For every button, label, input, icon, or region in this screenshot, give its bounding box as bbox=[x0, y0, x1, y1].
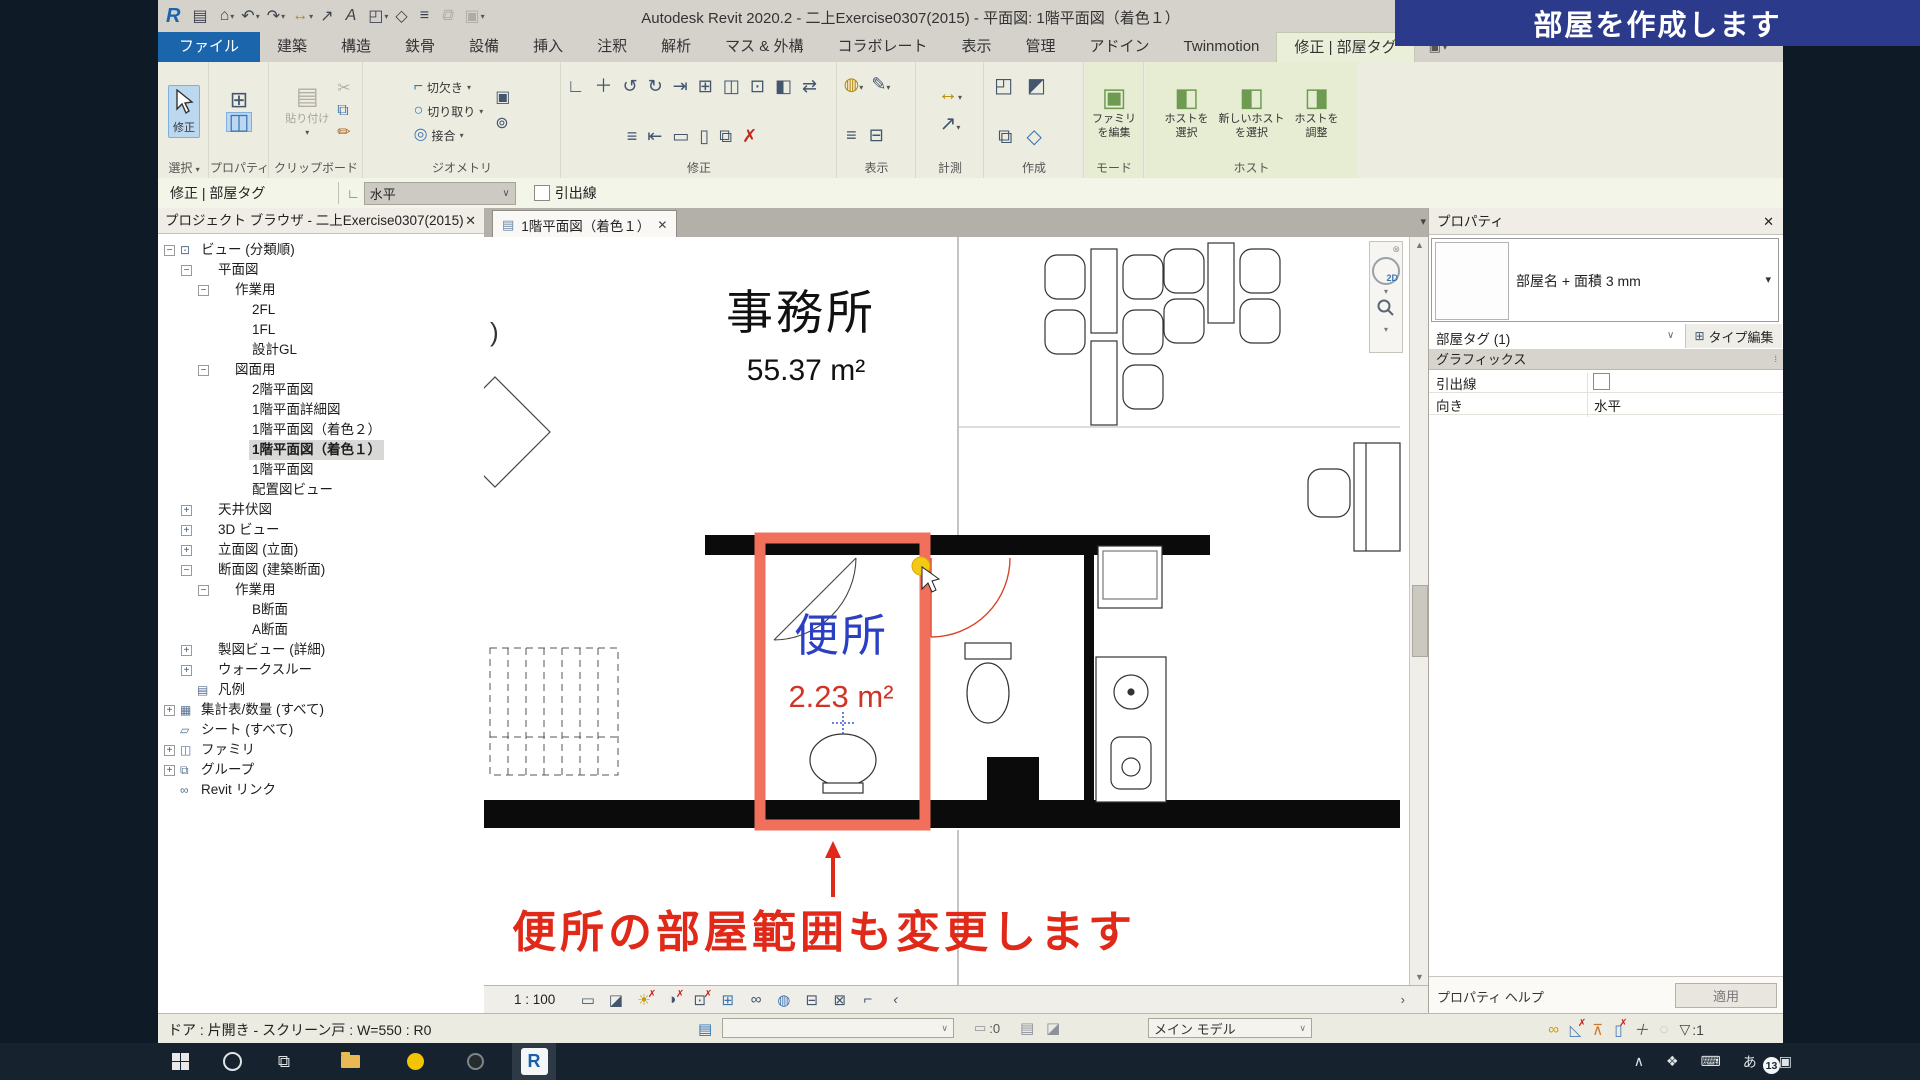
ribbon-tab[interactable]: Twinmotion bbox=[1167, 32, 1277, 62]
browser-icon bbox=[467, 1053, 484, 1070]
workset-dropdown[interactable]: ∨ bbox=[722, 1018, 954, 1038]
group-label-host[interactable]: ホスト bbox=[1145, 159, 1358, 177]
context-label: 修正 | 部屋タグ bbox=[170, 183, 330, 203]
view-tool-icon[interactable]: ◍▾ bbox=[844, 75, 864, 97]
tree-expand-icon[interactable]: + bbox=[164, 705, 175, 716]
selection-toggles: ∞✗ ◺✗ ⊼✗ ▯✗ ＋✗ bbox=[1548, 1019, 1704, 1040]
tree-item-icon: ◫ bbox=[180, 740, 194, 760]
screen: R▾ ▤▾ ⌂▾ ↶▾ ↷▾ ↔▾ ↗▾ A▾ ◰▾ ◇▾ bbox=[0, 0, 1920, 1080]
panel-host: ◧ ホストを 選択 ◧ 新しいホスト を選択 ◨ ホスト bbox=[1145, 62, 1358, 178]
tree-item-label: 1FL bbox=[249, 320, 278, 340]
property-row-orientation: 向き 水平 bbox=[1429, 392, 1783, 415]
tree-item-label: ファミリ bbox=[198, 740, 258, 760]
close-icon[interactable]: ✕ bbox=[1763, 208, 1774, 235]
view-control-bar: 1 : 100 ▭✗ ◪✗ ☀✗ bbox=[484, 985, 1429, 1013]
view-control-icon[interactable]: ⌐✗ bbox=[858, 991, 877, 1009]
edit-type-button[interactable]: ⊞ タイプ編集 bbox=[1685, 324, 1782, 348]
view-control-icon[interactable]: ⊠✗ bbox=[830, 991, 849, 1009]
tree-item-label: 2FL bbox=[249, 300, 278, 320]
geometry-tool[interactable]: ◎ 接合▾ bbox=[414, 126, 484, 144]
tree-item-label: B断面 bbox=[249, 600, 291, 620]
view-icon: ▤ bbox=[502, 217, 514, 233]
editable-count: ▭ :0 bbox=[974, 1020, 1000, 1036]
view-tab-menu-icon[interactable]: ▾ bbox=[1420, 215, 1426, 228]
room-area-office: 55.37 m² bbox=[747, 354, 865, 387]
selection-toggle-icon[interactable]: ◌✗ bbox=[1660, 1021, 1669, 1038]
modify-tool-icon[interactable]: ≡ bbox=[627, 127, 638, 145]
tree-expand-icon[interactable]: + bbox=[181, 505, 192, 516]
tray-icon[interactable]: ∧ bbox=[1634, 1053, 1644, 1070]
tree-item[interactable]: − 図面用 bbox=[158, 360, 484, 380]
modify-tool-icon[interactable]: ⇥ bbox=[673, 77, 688, 95]
tree-item-icon: ▤ bbox=[197, 680, 211, 700]
ribbon-tab[interactable]: 設備 bbox=[452, 32, 516, 62]
clipboard-tool-icon[interactable]: ✂ bbox=[337, 80, 350, 98]
group-label-clipboard[interactable]: クリップボード bbox=[270, 159, 362, 177]
close-icon[interactable]: ✕ bbox=[465, 208, 476, 234]
panel-view: ◍▾✎▾≡▾⊟▾ 表示 bbox=[838, 62, 916, 178]
modify-tool-icon[interactable]: ＋ bbox=[595, 77, 613, 95]
project-browser-tree: − ⊡ ビュー (分類順) − 平面図 − 作業用 bbox=[158, 235, 484, 1013]
tree-item[interactable]: ▤ 凡例 bbox=[158, 680, 484, 700]
tree-expand-icon[interactable]: − bbox=[198, 585, 209, 596]
view-control-icon[interactable]: ◪✗ bbox=[606, 991, 625, 1009]
tree-item-label: 2階平面図 bbox=[249, 380, 317, 400]
options-bar: 修正 | 部屋タグ ∟ 水平 ∨ 引出線 bbox=[158, 178, 1783, 209]
status-bar: ドア : 片開き - スクリーン戸 : W=550 : R0 ▤ ∨ ▭ :0 … bbox=[158, 1013, 1783, 1043]
status-message: ドア : 片開き - スクリーン戸 : W=550 : R0 bbox=[168, 1020, 431, 1040]
tree-item[interactable]: A断面 bbox=[158, 620, 484, 640]
create-tool-icon[interactable]: ◇ bbox=[1026, 128, 1041, 146]
group-label-geometry[interactable]: ジオメトリ bbox=[364, 159, 560, 177]
type-preview bbox=[1435, 242, 1509, 320]
panel-modify: ∟＋↺↻⇥⊞◫⊡◧⇄≡⇤▭▯⧉✗ 修正 bbox=[562, 62, 837, 178]
selection-toggle-icon[interactable]: ◺✗ bbox=[1570, 1021, 1582, 1039]
tree-expand-icon[interactable]: + bbox=[181, 525, 192, 536]
drawing-area: ▤ 1階平面図（着色１） ✕ ▾ ) bbox=[484, 208, 1429, 1013]
measure-tool-icon[interactable]: ↔▾ bbox=[938, 85, 962, 107]
tree-item[interactable]: 1FL bbox=[158, 320, 484, 340]
annotation-text: 便所の部屋範囲も変更します bbox=[512, 907, 1136, 957]
tree-item-label: 1階平面図（着色１） bbox=[249, 440, 384, 460]
tray-icon[interactable]: ❖ bbox=[1666, 1053, 1679, 1070]
measure-tool-icon[interactable]: ↗▾ bbox=[940, 115, 961, 137]
tree-item[interactable]: + 立面図 (立面) bbox=[158, 540, 484, 560]
group-label-properties[interactable]: プロパティ bbox=[210, 159, 268, 177]
group-label-modify[interactable]: 修正 bbox=[562, 159, 836, 177]
host-icon: ◧ bbox=[1174, 83, 1199, 111]
tree-item[interactable]: + ◫ ファミリ bbox=[158, 740, 484, 760]
modify-tool-icon[interactable]: ⊞ bbox=[698, 77, 713, 95]
properties-header[interactable]: プロパティ ✕ bbox=[1429, 208, 1783, 235]
modify-button[interactable]: 修正 bbox=[168, 85, 200, 138]
geometry-tool[interactable]: ⌐ 切欠き▾ bbox=[414, 78, 484, 96]
door-swing-red bbox=[931, 558, 1010, 637]
tree-item[interactable]: 1階平面図（着色１） bbox=[158, 440, 484, 460]
modify-tool-icon[interactable]: ↺ bbox=[623, 77, 638, 95]
scroll-down-icon[interactable]: ▼ bbox=[1410, 972, 1429, 982]
wall-bottom bbox=[484, 800, 1400, 828]
properties-palette-icon[interactable]: ◫ bbox=[226, 112, 253, 132]
revit-window: R▾ ▤▾ ⌂▾ ↶▾ ↷▾ ↔▾ ↗▾ A▾ ◰▾ ◇▾ bbox=[158, 0, 1783, 1043]
orientation-icon: ∟ bbox=[347, 186, 360, 201]
tree-expand-icon[interactable]: − bbox=[198, 285, 209, 296]
panel-measure: ↔▾↗▾ 計測 bbox=[917, 62, 984, 178]
view-tab[interactable]: ▤ 1階平面図（着色１） ✕ bbox=[492, 210, 677, 238]
edit-family-button[interactable]: ▣ ファミリ を編集 bbox=[1088, 80, 1140, 142]
ribbon-tab[interactable]: アドイン bbox=[1073, 32, 1167, 62]
room-name-toilet: 便所 bbox=[794, 610, 888, 661]
tree-item-label: A断面 bbox=[249, 620, 291, 640]
tree-item[interactable]: 配置図ビュー bbox=[158, 480, 484, 500]
tree-item-label: 立面図 (立面) bbox=[215, 540, 301, 560]
wall-divider bbox=[1084, 555, 1094, 802]
paste-button[interactable]: ▤ 貼り付け▾ bbox=[281, 80, 333, 142]
tree-expand-icon[interactable]: − bbox=[198, 365, 209, 376]
tree-item[interactable]: − 平面図 bbox=[158, 260, 484, 280]
view-control-icon[interactable]: ⊞✗ bbox=[718, 991, 737, 1009]
apply-button[interactable]: 適用 bbox=[1675, 983, 1777, 1008]
group-label-view[interactable]: 表示 bbox=[838, 159, 915, 177]
close-view-icon[interactable]: ✕ bbox=[657, 218, 667, 232]
yellow-app-icon bbox=[407, 1053, 424, 1070]
modify-tool-icon[interactable]: ◧ bbox=[775, 77, 792, 95]
browser-button[interactable] bbox=[455, 1043, 495, 1080]
paste-icon: ▤ bbox=[296, 83, 319, 111]
panel-create: ◰◩⧉◇ 作成 bbox=[985, 62, 1084, 178]
tree-item-label: 配置図ビュー bbox=[249, 480, 336, 500]
clipboard-tool-icon[interactable]: ✏ bbox=[337, 124, 350, 142]
search-icon bbox=[223, 1052, 242, 1071]
family-properties-icon[interactable]: ⊞ bbox=[230, 91, 248, 109]
clipboard-tool-icon[interactable]: ⧉ bbox=[337, 102, 350, 120]
group-label-measure[interactable]: 計測 bbox=[917, 159, 983, 177]
element-filter-row: 部屋タグ (1) ∨ ⊞ タイプ編集 bbox=[1429, 324, 1783, 350]
orientation-value[interactable]: 水平 bbox=[1587, 395, 1767, 417]
ribbon-tab[interactable]: 解析 bbox=[644, 32, 708, 62]
host-icon: ◧ bbox=[1239, 83, 1264, 111]
cursor-icon bbox=[173, 89, 195, 120]
tree-item[interactable]: ∞ Revit リンク bbox=[158, 780, 484, 800]
panel-mode: ▣ ファミリ を編集 モード bbox=[1085, 62, 1144, 178]
modify-tool-icon[interactable]: ▯ bbox=[699, 127, 709, 145]
view-tool-icon[interactable]: ⊟▾ bbox=[869, 126, 888, 148]
geometry-side-icon[interactable]: ▣ bbox=[495, 89, 510, 107]
tree-item[interactable]: 1階平面図 bbox=[158, 460, 484, 480]
modify-tool-icon[interactable]: ✗ bbox=[742, 127, 757, 145]
host-button[interactable]: ◨ ホストを 調整 bbox=[1291, 80, 1343, 142]
navigation-bar: ⊗ 2D ▾ ▾ bbox=[1369, 241, 1403, 353]
floor-plan-svg: ) bbox=[484, 237, 1409, 985]
geometry-tool-icon: ⌐ bbox=[414, 78, 423, 96]
ribbon-tab[interactable]: 注釈 bbox=[580, 32, 644, 62]
host-button[interactable]: ◧ ホストを 選択 bbox=[1161, 80, 1213, 142]
task-view-button[interactable]: ⧉ bbox=[264, 1043, 304, 1080]
ribbon-tab[interactable]: マス & 外構 bbox=[708, 32, 820, 62]
properties-help-link[interactable]: プロパティ ヘルプ bbox=[1437, 987, 1544, 1006]
section-pin-icon: ⁞ bbox=[1774, 349, 1777, 370]
revit-icon: R bbox=[521, 1048, 548, 1075]
start-button[interactable] bbox=[160, 1043, 200, 1080]
geometry-tool[interactable]: ○ 切り取り▾ bbox=[414, 102, 484, 120]
view-control-icon[interactable]: ◑✗ bbox=[662, 991, 681, 1009]
tree-item-label: 天井伏図 bbox=[215, 500, 275, 520]
tree-item-label: 平面図 bbox=[215, 260, 262, 280]
folder-icon bbox=[341, 1055, 360, 1068]
tree-item-icon: ▱ bbox=[180, 720, 194, 740]
tree-item[interactable]: + 製図ビュー (詳細) bbox=[158, 640, 484, 660]
ribbon-tab[interactable]: 管理 bbox=[1009, 32, 1073, 62]
edit-type-icon: ⊞ bbox=[1694, 329, 1704, 343]
modify-tool-icon[interactable]: ▭ bbox=[672, 127, 689, 145]
annotation-arrow bbox=[825, 841, 841, 897]
tree-item[interactable]: + ▦ 集計表/数量 (すべて) bbox=[158, 700, 484, 720]
view-control-icon[interactable]: ⊡✗ bbox=[690, 991, 709, 1009]
tree-item-icon: ▦ bbox=[180, 700, 194, 720]
wall-block bbox=[987, 757, 1039, 802]
windows-logo-icon bbox=[172, 1053, 189, 1070]
tree-expand-icon[interactable]: + bbox=[181, 545, 192, 556]
panel-select: 修正 選択 ▾ bbox=[160, 62, 209, 178]
taskbar: ⧉ R ∧❖⌨あ▣ 13 bbox=[0, 1043, 1920, 1080]
ribbon-tab[interactable]: 挿入 bbox=[516, 32, 580, 62]
modify-tool-icon[interactable]: ∟ bbox=[567, 77, 585, 95]
zoom-icon[interactable] bbox=[1376, 298, 1396, 323]
design-option-icon[interactable]: ▤ bbox=[1020, 1019, 1034, 1037]
tree-item[interactable]: + ⧉ グループ bbox=[158, 760, 484, 780]
tree-item-icon: ∞ bbox=[180, 780, 194, 800]
group-label-select[interactable]: 選択 ▾ bbox=[160, 159, 208, 177]
tree-item-label: 設計GL bbox=[249, 340, 300, 360]
create-tool-icon[interactable]: ◰ bbox=[994, 77, 1013, 95]
tree-item-icon: ⊡ bbox=[180, 240, 194, 260]
tree-item-label: 断面図 (建築断面) bbox=[215, 560, 328, 580]
vertical-scrollbar[interactable]: ▲ ▼ bbox=[1409, 237, 1429, 985]
leader-checkbox[interactable] bbox=[534, 185, 550, 201]
selection-toggle-icon[interactable]: ∞✗ bbox=[1548, 1021, 1559, 1038]
tree-item-label: シート (すべて) bbox=[198, 720, 296, 740]
ribbon-tab[interactable]: ファイル bbox=[158, 32, 260, 62]
tree-expand-icon[interactable]: + bbox=[181, 665, 192, 676]
tree-expand-icon[interactable]: − bbox=[164, 245, 175, 256]
type-selector[interactable]: 部屋名 + 面積 3 mm ▾ bbox=[1431, 238, 1779, 322]
ribbon-tab[interactable]: 建築 bbox=[260, 32, 324, 62]
view-control-icon[interactable]: ▭✗ bbox=[578, 991, 597, 1009]
tree-item-label: 製図ビュー (詳細) bbox=[215, 640, 328, 660]
orientation-dropdown[interactable]: 水平 ∨ bbox=[364, 182, 516, 205]
tree-item[interactable]: + 天井伏図 bbox=[158, 500, 484, 520]
design-option-dropdown[interactable]: メイン モデル ∨ bbox=[1148, 1018, 1312, 1038]
tree-item[interactable]: 設計GL bbox=[158, 340, 484, 360]
navbar-close-icon[interactable]: ⊗ bbox=[1392, 244, 1400, 255]
selection-toggle-icon[interactable]: ⊼✗ bbox=[1592, 1021, 1603, 1039]
property-row-leader: 引出線 bbox=[1429, 370, 1783, 393]
move-icon bbox=[832, 712, 854, 734]
group-label-create[interactable]: 作成 bbox=[985, 159, 1083, 177]
revit-taskbar-button[interactable]: R bbox=[512, 1043, 556, 1080]
exclude-options-icon[interactable]: ◪ bbox=[1046, 1019, 1060, 1037]
tree-item-label: 図面用 bbox=[232, 360, 279, 380]
ribbon-tab[interactable]: 修正 | 部屋タグ bbox=[1276, 32, 1414, 62]
modify-tool-icon[interactable]: ◫ bbox=[723, 77, 740, 95]
project-browser-header[interactable]: プロジェクト ブラウザ - 二上Exercise0307(2015) ✕ bbox=[158, 208, 484, 234]
tree-expand-icon[interactable]: − bbox=[181, 265, 192, 276]
modify-tool-icon[interactable]: ⊡ bbox=[750, 77, 765, 95]
scale-control[interactable]: 1 : 100 bbox=[514, 992, 555, 1007]
view-control-icon[interactable]: ‹✗ bbox=[886, 991, 905, 1009]
tree-item[interactable]: B断面 bbox=[158, 600, 484, 620]
create-tool-icon[interactable]: ⧉ bbox=[998, 128, 1012, 146]
tree-item-label: 作業用 bbox=[232, 580, 279, 600]
chevron-down-icon[interactable]: ▾ bbox=[1765, 273, 1771, 286]
tree-item[interactable]: ▱ シート (すべて) bbox=[158, 720, 484, 740]
host-button[interactable]: ◧ 新しいホスト を選択 bbox=[1215, 80, 1289, 142]
properties-panel: プロパティ ✕ 部屋名 + 面積 3 mm ▾ 部屋タグ (1) ∨ ⊞ タイプ… bbox=[1428, 208, 1783, 1013]
tree-item[interactable]: − 作業用 bbox=[158, 580, 484, 600]
dashed-zone bbox=[490, 648, 618, 775]
workset-icon[interactable]: ▤ bbox=[698, 1020, 712, 1038]
modify-tool-icon[interactable]: ⇄ bbox=[802, 77, 817, 95]
tree-item-label: グループ bbox=[198, 760, 257, 780]
tree-item-label: 作業用 bbox=[232, 280, 279, 300]
tree-item-label: 1階平面図（着色２） bbox=[249, 420, 384, 440]
tree-item[interactable]: 1階平面詳細図 bbox=[158, 400, 484, 420]
panel-properties: ⊞ ◫ プロパティ bbox=[210, 62, 269, 178]
view-tool-icon[interactable]: ✎▾ bbox=[871, 75, 890, 97]
view-tool-icon[interactable]: ≡▾ bbox=[846, 126, 861, 148]
project-browser: プロジェクト ブラウザ - 二上Exercise0307(2015) ✕ − ⊡… bbox=[158, 208, 485, 1013]
tree-item[interactable]: − 断面図 (建築断面) bbox=[158, 560, 484, 580]
tree-item-label: 集計表/数量 (すべて) bbox=[198, 700, 327, 720]
scrollbar-thumb[interactable] bbox=[1412, 585, 1428, 657]
selection-toggle-icon[interactable]: ＋✗ bbox=[1634, 1019, 1649, 1040]
ribbon-tab[interactable]: コラボレート bbox=[820, 32, 944, 62]
geometry-tool-icon: ◎ bbox=[414, 126, 428, 144]
banner-text: 部屋を作成します bbox=[1533, 2, 1781, 44]
modify-tool-icon[interactable]: ⧉ bbox=[719, 127, 732, 145]
tree-expand-icon[interactable]: − bbox=[181, 565, 192, 576]
tree-item[interactable]: − ⊡ ビュー (分類順) bbox=[158, 240, 484, 260]
tree-item[interactable]: + 3D ビュー bbox=[158, 520, 484, 540]
modify-tool-icon[interactable]: ⇤ bbox=[647, 127, 662, 145]
tree-item-label: 凡例 bbox=[215, 680, 248, 700]
geometry-tool-icon: ○ bbox=[414, 102, 424, 120]
tree-expand-icon[interactable]: + bbox=[164, 745, 175, 756]
room-area-toilet: 2.23 m² bbox=[788, 679, 893, 714]
tree-expand-icon[interactable]: + bbox=[164, 765, 175, 776]
tree-item[interactable]: 2FL bbox=[158, 300, 484, 320]
view-control-icon[interactable]: ◍✗ bbox=[774, 991, 793, 1009]
scroll-right-icon[interactable]: › bbox=[1401, 992, 1405, 1007]
file-explorer-button[interactable] bbox=[330, 1043, 370, 1080]
panel-geometry: ⌐ 切欠き▾ ○ 切り取り▾ ◎ 接合▾ bbox=[364, 62, 561, 178]
tree-item[interactable]: 2階平面図 bbox=[158, 380, 484, 400]
group-label-mode[interactable]: モード bbox=[1085, 159, 1143, 177]
room-name-office: 事務所 bbox=[726, 286, 876, 339]
view-control-icon[interactable]: ∞✗ bbox=[746, 991, 765, 1009]
furniture bbox=[1045, 243, 1400, 551]
floor-plan-view[interactable]: ) bbox=[484, 237, 1409, 985]
element-filter[interactable]: 部屋タグ (1) bbox=[1436, 328, 1510, 348]
ribbon-tab[interactable]: 表示 bbox=[944, 32, 1008, 62]
panel-clipboard: ▤ 貼り付け▾ ✂⧉✏ クリップボード bbox=[270, 62, 363, 178]
tray-icon[interactable]: ▣ bbox=[1779, 1053, 1792, 1070]
tray-icon[interactable]: ⌨ bbox=[1701, 1053, 1721, 1070]
tree-item-label: 1階平面図 bbox=[249, 460, 317, 480]
tree-item-label: Revit リンク bbox=[198, 780, 279, 800]
geometry-side-icon[interactable]: ⊚ bbox=[495, 115, 510, 133]
tree-item-label: ビュー (分類順) bbox=[198, 240, 298, 260]
search-button[interactable] bbox=[212, 1043, 252, 1080]
tree-item[interactable]: + ウォークスルー bbox=[158, 660, 484, 680]
view-control-icon[interactable]: ⊟✗ bbox=[802, 991, 821, 1009]
selection-toggle-icon[interactable]: ▯✗ bbox=[1614, 1021, 1622, 1039]
tree-expand-icon[interactable]: + bbox=[181, 645, 192, 656]
tree-item-icon: ⧉ bbox=[180, 760, 194, 780]
filter-button[interactable]: ▽:1 bbox=[1679, 1021, 1703, 1038]
tutorial-banner: 部屋を作成します bbox=[1395, 0, 1920, 46]
create-tool-icon[interactable]: ◩ bbox=[1027, 77, 1046, 95]
modify-tool-icon[interactable]: ↻ bbox=[648, 77, 663, 95]
ribbon: 修正 選択 ▾ ⊞ ◫ プロパティ ▤ 貼り付け▾ bbox=[158, 62, 1783, 179]
view-control-icon[interactable]: ☀✗ bbox=[634, 991, 653, 1009]
steering-wheel-icon[interactable]: 2D bbox=[1372, 257, 1400, 285]
tree-item-label: 1階平面詳細図 bbox=[249, 400, 344, 420]
pinned-app-button[interactable] bbox=[395, 1043, 435, 1080]
ribbon-tab[interactable]: 鉄骨 bbox=[388, 32, 452, 62]
tree-item-label: ウォークスルー bbox=[215, 660, 315, 680]
tree-item[interactable]: 1階平面図（着色２） bbox=[158, 420, 484, 440]
tree-item[interactable]: − 作業用 bbox=[158, 280, 484, 300]
view-tab-bar: ▤ 1階平面図（着色１） ✕ ▾ bbox=[484, 208, 1429, 237]
scroll-up-icon[interactable]: ▲ bbox=[1410, 240, 1429, 250]
ribbon-tab[interactable]: 構造 bbox=[324, 32, 388, 62]
chevron-down-icon[interactable]: ∨ bbox=[1667, 330, 1674, 341]
grid-bubble: ) bbox=[490, 317, 499, 347]
tree-item-label: 3D ビュー bbox=[215, 520, 283, 540]
tray-icon[interactable]: あ bbox=[1743, 1052, 1757, 1072]
leader-line-checkbox[interactable] bbox=[1593, 373, 1610, 390]
type-name: 部屋名 + 面積 3 mm bbox=[1516, 271, 1641, 291]
edit-family-icon: ▣ bbox=[1102, 83, 1127, 111]
notification-badge[interactable]: 13 bbox=[1763, 1057, 1780, 1074]
host-icon: ◨ bbox=[1304, 83, 1329, 111]
leader-label: 引出線 bbox=[555, 183, 597, 203]
section-graphics[interactable]: グラフィックス ⁞ bbox=[1429, 349, 1783, 370]
